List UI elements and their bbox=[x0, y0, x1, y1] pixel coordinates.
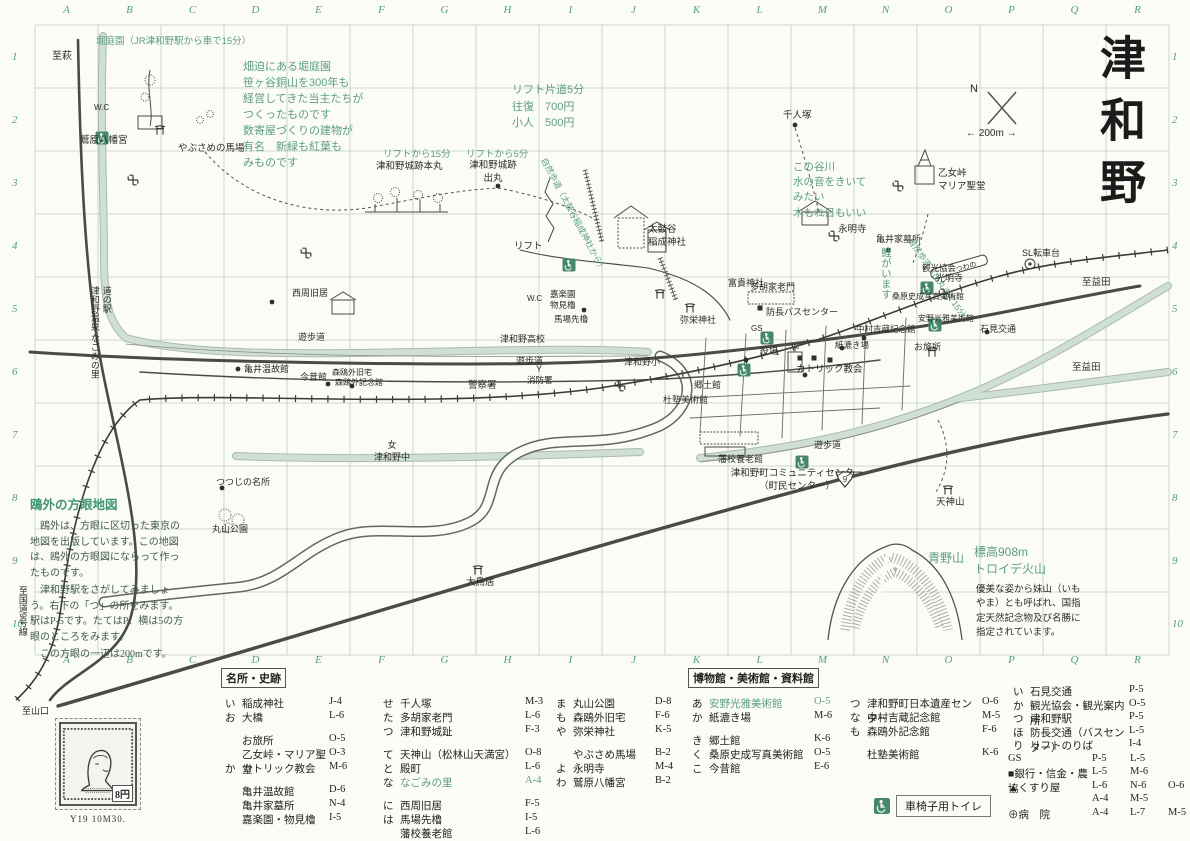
map-label: 標高908m トロイデ火山 bbox=[974, 544, 1046, 578]
map-label: この谷川 水の音をきいて みたい 木もれ日もいい bbox=[793, 160, 866, 221]
legend-place-name: 亀井家墓所 bbox=[242, 798, 329, 813]
legend-row: 亀井温故館D-6 bbox=[225, 784, 365, 799]
grid-row-label: 7 bbox=[1172, 429, 1178, 441]
map-label: 至益田 bbox=[1082, 277, 1111, 290]
legend-place-name: 安野光雅美術館 bbox=[709, 696, 814, 711]
grid-column-label: R bbox=[1134, 4, 1141, 16]
legend-kana bbox=[225, 733, 242, 748]
legend-place-name: 今昔館 bbox=[709, 761, 814, 776]
legend-row: 杜塾美術館K-6 bbox=[850, 747, 1018, 762]
torii-icon bbox=[943, 486, 953, 495]
legend-grid-coord: E-6 bbox=[814, 761, 850, 776]
map-label: 津和野町コミュニティセンター （町民センター） bbox=[706, 468, 888, 493]
grid-column-label: K bbox=[693, 654, 700, 666]
map-label: 津和野城跡本丸 bbox=[376, 161, 443, 174]
legend-facility-row: A-4M-5 bbox=[1008, 793, 1168, 804]
grid-row-label: 9 bbox=[1172, 555, 1178, 567]
legend-kana: な bbox=[383, 775, 400, 790]
legend-kana: い bbox=[225, 696, 242, 711]
grid-row-label: 6 bbox=[12, 366, 18, 378]
legend-grid-coord: M-5 bbox=[1168, 807, 1190, 822]
legend-place-name: 大橋 bbox=[242, 710, 329, 725]
bank-icon bbox=[828, 358, 833, 363]
map-label: 優美な姿から妹山（いも やま）とも呼ばれ、国指 定天然記念物及び名勝に 指定され… bbox=[976, 583, 1081, 640]
map-label: 丸山公園 bbox=[212, 524, 248, 536]
legend-grid-coord: F-5 bbox=[525, 798, 561, 813]
legend-kana bbox=[383, 826, 400, 841]
map-label: 畑迫にある堀庭園 笹ヶ谷銅山を300年も 経営してきた当主たちが つくったもので… bbox=[243, 60, 363, 172]
legend-row: き郷土館K-6 bbox=[692, 733, 850, 748]
map-label: 西周旧居 bbox=[292, 288, 328, 300]
map-label: 永明寺 bbox=[838, 224, 867, 237]
map-label: 太鼓谷 稲成神社 bbox=[648, 224, 686, 249]
legend-place-name: 中村吉蔵記念館 bbox=[867, 710, 982, 725]
map-label: つつじの名所 bbox=[216, 477, 270, 489]
legend-kana: お bbox=[225, 710, 242, 725]
map-label: 津和野小 bbox=[624, 357, 660, 369]
temple-manji-icon bbox=[615, 381, 625, 391]
tsuwano-map-page: 9 AABBCCDDEEFFGGHHIIJJKKLLMMNNOOPPQQRR11… bbox=[0, 0, 1190, 841]
legend-kana: り bbox=[1013, 738, 1030, 753]
grid-column-label: B bbox=[126, 4, 133, 16]
legend-grid-coord: F-6 bbox=[655, 710, 691, 725]
stamp-frame: 8円 bbox=[59, 722, 137, 806]
grid-map-note-paragraph: 津和野駅をさがしてみましょう。右下の「つ」の所をみます。駅はP-5です。たてはP… bbox=[30, 583, 186, 645]
map-label: 鯉がいます bbox=[878, 247, 892, 300]
legend-row: つ津和野城趾F-3 bbox=[383, 724, 561, 739]
torii-icon bbox=[685, 304, 695, 313]
compass-icon bbox=[988, 92, 1016, 124]
legend-row: お旅所O-5 bbox=[225, 733, 365, 748]
legend-facility-label: ⊕病 院 bbox=[1008, 807, 1092, 822]
legend-row: て天神山（松林山天満宮）O-8 bbox=[383, 747, 561, 762]
grid-column-label: Q bbox=[1071, 654, 1079, 666]
grid-row-label: 1 bbox=[1172, 51, 1178, 63]
spot-dot-icon bbox=[236, 367, 241, 372]
torii-icon bbox=[155, 126, 165, 135]
legend-grid-coord: N-4 bbox=[329, 798, 365, 813]
map-label: カトリック教会 bbox=[796, 364, 863, 377]
temple-manji-icon bbox=[893, 181, 903, 191]
page-title: 津和野 bbox=[1086, 34, 1152, 220]
grid-column-label: D bbox=[252, 4, 260, 16]
map-label: 紙漉き場 bbox=[835, 340, 869, 351]
grid-row-label: 1 bbox=[12, 51, 18, 63]
grid-column-label: K bbox=[693, 4, 700, 16]
legend-kana: こ bbox=[692, 761, 709, 776]
legend-place-name: 杜塾美術館 bbox=[867, 747, 982, 762]
legend-row: く桑原史成写真美術館O-5 bbox=[692, 747, 850, 762]
grid-column-label: Q bbox=[1071, 4, 1079, 16]
grid-row-label: 9 bbox=[12, 555, 18, 567]
legend-place-name: 殿町 bbox=[400, 761, 525, 776]
map-label: 千人塚 bbox=[783, 110, 812, 123]
grid-row-label: 3 bbox=[1172, 177, 1178, 189]
legend-kana bbox=[225, 812, 242, 827]
map-label: 森鴎外旧宅 bbox=[332, 368, 372, 379]
map-label: 至益田 bbox=[1072, 362, 1101, 375]
legend-grid-coord: B-2 bbox=[655, 775, 691, 790]
torii-icon bbox=[473, 566, 483, 575]
spot-dot-icon bbox=[793, 123, 798, 128]
legend-row: た多胡家老門L-6 bbox=[383, 710, 561, 725]
legend-row: あ安野光雅美術館O-5 bbox=[692, 696, 850, 711]
legend-row: よ永明寺M-4 bbox=[556, 761, 691, 776]
legend-grid-coord: O-5 bbox=[814, 696, 850, 711]
river-meander bbox=[104, 356, 687, 602]
legend-kana: は bbox=[383, 812, 400, 827]
legend-kana bbox=[225, 798, 242, 813]
legend-place-name: 桑原史成写真美術館 bbox=[709, 747, 814, 762]
legend-place-name: 津和野城趾 bbox=[400, 724, 525, 739]
legend-facility-label bbox=[1008, 793, 1092, 804]
grid-column-label: I bbox=[569, 654, 573, 666]
bank-icon bbox=[758, 306, 763, 311]
map-label: 至萩 bbox=[52, 50, 72, 63]
legend-row: は馬場先櫓I-5 bbox=[383, 812, 561, 827]
legend-place-name: 郷土館 bbox=[709, 733, 814, 748]
grid-column-label: J bbox=[631, 4, 636, 16]
legend-grid-coord: M-6 bbox=[814, 710, 850, 725]
map-label: 鷲原八幡宮 bbox=[80, 135, 128, 148]
grid-column-label: C bbox=[189, 654, 196, 666]
legend-row: も森鴎外旧宅F-6 bbox=[556, 710, 691, 725]
legend-kana bbox=[850, 747, 867, 762]
map-label: 中村吉蔵記念館 bbox=[856, 324, 916, 335]
torii-icon bbox=[655, 290, 665, 299]
grid-column-label: G bbox=[441, 4, 449, 16]
map-label: 天神山 bbox=[936, 497, 965, 510]
legend-place-name: 紙漉き場 bbox=[709, 710, 814, 725]
grid-column-label: F bbox=[378, 4, 385, 16]
legend-grid-coord: L-6 bbox=[525, 826, 561, 841]
grid-row-label: 6 bbox=[1172, 366, 1178, 378]
grid-column-label: N bbox=[882, 4, 889, 16]
legend-grid-coord: P-5 bbox=[1092, 753, 1130, 764]
map-label: 多胡家老門 bbox=[750, 282, 795, 294]
legend-grid-coord: B-2 bbox=[655, 747, 691, 762]
grid-column-label: O bbox=[945, 654, 953, 666]
map-label: 杜塾美術館 bbox=[663, 395, 708, 407]
map-label: リフト bbox=[514, 241, 543, 254]
legend-place-name: 永明寺 bbox=[573, 761, 655, 776]
legend-kana: く bbox=[692, 747, 709, 762]
legend-grid-coord: M-5 bbox=[1130, 793, 1168, 804]
grid-column-label: L bbox=[756, 654, 762, 666]
grid-column-label: D bbox=[252, 654, 260, 666]
map-label: GS bbox=[751, 324, 763, 335]
legend-place-name: 森鴎外旧宅 bbox=[573, 710, 655, 725]
legend-kana: な bbox=[850, 710, 867, 725]
legend-row: も森鴎外記念館F-6 bbox=[850, 724, 1018, 739]
legend-grid-coord: M-6 bbox=[329, 761, 365, 776]
legend-kana: か bbox=[225, 761, 242, 776]
legend-kana: も bbox=[556, 710, 573, 725]
legend-kana: た bbox=[383, 710, 400, 725]
legend-place-name: カトリック教会 bbox=[242, 761, 329, 776]
legend-section-header: 博物館・美術館・資料館 bbox=[688, 668, 819, 688]
legend-place-name: 丸山公園 bbox=[573, 696, 655, 711]
map-label: 津和野城跡 出丸 bbox=[462, 160, 524, 185]
legend-grid-coord: D-6 bbox=[329, 784, 365, 799]
map-label: 津和野高校 bbox=[500, 334, 545, 346]
wheelchair-icon bbox=[563, 259, 576, 272]
legend-place-name: 稲成神社 bbox=[242, 696, 329, 711]
legend-grid-coord: L-7 bbox=[1130, 807, 1168, 822]
legend-row: こ今昔館E-6 bbox=[692, 761, 850, 776]
legend-place-name: 多胡家老門 bbox=[400, 710, 525, 725]
spot-dot-icon bbox=[270, 300, 275, 305]
grid-column-label: N bbox=[882, 654, 889, 666]
grid-row-label: 5 bbox=[12, 303, 18, 315]
legend-place-name: なごみの里 bbox=[400, 775, 525, 790]
legend-kana: ま bbox=[556, 696, 573, 711]
legend-grid-coord: A-4 bbox=[1092, 807, 1130, 822]
map-label: N bbox=[970, 82, 978, 97]
map-label: 安野光雅美術館 bbox=[918, 314, 974, 325]
temple-manji-icon bbox=[128, 175, 138, 185]
map-label: 光明寺 bbox=[936, 273, 963, 285]
legend-row: な中村吉蔵記念館M-5 bbox=[850, 710, 1018, 725]
legend-row: お大橋L-6 bbox=[225, 710, 365, 725]
map-label: SL転車台 bbox=[1022, 248, 1060, 260]
legend-kana: つ bbox=[383, 724, 400, 739]
legend-row: ま丸山公園D-8 bbox=[556, 696, 691, 711]
map-label: 役場 bbox=[760, 346, 778, 358]
legend-grid-coord: J-4 bbox=[329, 696, 365, 711]
legend-kana: に bbox=[383, 798, 400, 813]
legend-grid-coord: O-6 bbox=[1168, 780, 1190, 795]
grid-row-label: 4 bbox=[12, 240, 18, 252]
legend-place-name: 鷲原八幡宮 bbox=[573, 775, 655, 790]
legend-place-name: 森鴎外記念館 bbox=[867, 724, 982, 739]
legend-grid-coord: M-4 bbox=[655, 761, 691, 776]
map-label: 石見交通 bbox=[980, 324, 1016, 336]
legend-place-name: リフトのりば bbox=[1030, 738, 1129, 753]
legend-kana: あ bbox=[692, 696, 709, 711]
legend-grid-coord: I-5 bbox=[525, 812, 561, 827]
grid-column-label: P bbox=[1008, 4, 1015, 16]
legend-place-name: 西周旧居 bbox=[400, 798, 525, 813]
legend-grid-coord: D-8 bbox=[655, 696, 691, 711]
map-label: 弥栄神社 bbox=[680, 315, 716, 327]
legend-row: か紙漉き場M-6 bbox=[692, 710, 850, 725]
legend-grid-coord: L-6 bbox=[329, 710, 365, 725]
map-label: 森鴎外記念館 bbox=[335, 378, 383, 389]
map-label: 堀庭園（JR津和野駅から車で15分） bbox=[96, 36, 251, 49]
grid-column-label: O bbox=[945, 4, 953, 16]
legend-kana: て bbox=[383, 747, 400, 762]
grid-column-label: E bbox=[315, 654, 322, 666]
stamp-caption: Y19 10M30. bbox=[55, 814, 141, 824]
grid-column-label: G bbox=[441, 654, 449, 666]
legend-kana: わ bbox=[556, 775, 573, 790]
legend-place-name: 天神山（松林山天満宮） bbox=[400, 747, 525, 762]
grid-column-label: E bbox=[315, 4, 322, 16]
grid-column-label: L bbox=[756, 4, 762, 16]
map-label: 至国道9号線 bbox=[16, 586, 28, 636]
legend-grid-coord: L-5 bbox=[1130, 753, 1168, 764]
legend-place-name: 千人塚 bbox=[400, 696, 525, 711]
map-label: 防長バスセンター bbox=[766, 307, 838, 319]
legend-kana: せ bbox=[383, 696, 400, 711]
map-label: 女 津和野中 bbox=[362, 440, 422, 464]
map-label: 観光協会 bbox=[922, 263, 956, 274]
stamp-denomination: 8円 bbox=[112, 785, 133, 802]
wheelchair-icon bbox=[796, 456, 809, 469]
map-label: 警察署 bbox=[468, 380, 497, 393]
legend-place-name: 嘉楽園・物見櫓 bbox=[242, 812, 329, 827]
legend-place-name: 馬場先櫓 bbox=[400, 812, 525, 827]
washibara-shrine-sketch bbox=[138, 70, 213, 129]
grid-column-label: H bbox=[504, 654, 512, 666]
temple-manji-icon bbox=[301, 248, 311, 258]
legend-grid-coord: I-5 bbox=[329, 812, 365, 827]
legend-row: せ千人塚M-3 bbox=[383, 696, 561, 711]
map-label: 乙女峠 マリア聖堂 bbox=[938, 168, 986, 193]
legend-kana: と bbox=[383, 761, 400, 776]
map-label: 亀井温故館 bbox=[244, 364, 289, 376]
legend-place-name: 藩校養老館 bbox=[400, 826, 525, 841]
map-label: お旅所 bbox=[914, 342, 941, 354]
wheelchair-icon bbox=[874, 798, 890, 814]
legend-place-name: お旅所 bbox=[242, 733, 329, 748]
legend-kana: か bbox=[692, 710, 709, 725]
legend-kana bbox=[225, 784, 242, 799]
grid-column-label: C bbox=[189, 4, 196, 16]
legend-kana: き bbox=[692, 733, 709, 748]
legend-row: りリフトのりばI-4 bbox=[1013, 738, 1165, 753]
grid-map-note-title: 鴎外の方眼地図 bbox=[30, 494, 186, 513]
grid-row-label: 5 bbox=[1172, 303, 1178, 315]
map-label: 至山口 bbox=[22, 706, 49, 718]
grid-row-label: 10 bbox=[1172, 618, 1183, 630]
legend-row: 亀井家墓所N-4 bbox=[225, 798, 365, 813]
map-label: 藩校養老館 bbox=[718, 454, 763, 466]
map-label: 遊歩道 bbox=[814, 440, 841, 452]
map-label: 今昔館 bbox=[300, 372, 327, 384]
wheelchair-toilet-note: 車椅子用トイレ bbox=[874, 795, 991, 817]
map-label: ← 200m → bbox=[966, 127, 1017, 140]
grid-column-label: M bbox=[818, 654, 827, 666]
grid-row-label: 3 bbox=[12, 177, 18, 189]
legend-facility-label: GS bbox=[1008, 753, 1092, 764]
legend-kana: よ bbox=[556, 761, 573, 776]
grid-row-label: 7 bbox=[12, 429, 18, 441]
legend-row: かカトリック教会M-6 bbox=[225, 761, 365, 776]
grid-map-note-paragraph: この方眼の一辺は200mです。 bbox=[30, 647, 186, 663]
legend-place-name: 弥栄神社 bbox=[573, 724, 655, 739]
bank-icon bbox=[812, 356, 817, 361]
map-label: リフトから15分 bbox=[383, 149, 451, 162]
map-label: 遊歩道 bbox=[298, 332, 325, 344]
wheelchair-toilet-label: 車椅子用トイレ bbox=[896, 795, 991, 817]
map-label: W.C bbox=[527, 294, 542, 305]
grid-row-label: 8 bbox=[1172, 492, 1178, 504]
spot-dot-icon bbox=[582, 308, 587, 313]
legend-row: 嘉楽園・物見櫓I-5 bbox=[225, 812, 365, 827]
castle-sketch bbox=[365, 188, 448, 213]
legend-grid-coord: A-4 bbox=[1092, 793, 1130, 804]
grid-column-label: I bbox=[569, 4, 573, 16]
map-label: リフト片道5分 往復 700円 小人 500円 bbox=[512, 82, 584, 132]
map-label: やぶさめの馬場 bbox=[178, 143, 245, 156]
legend-row: や弥栄神社K-5 bbox=[556, 724, 691, 739]
grid-column-label: A bbox=[63, 4, 70, 16]
ogai-stamp: 8円 bbox=[55, 718, 141, 810]
map-label: 道の駅 津和野温泉 なごみの里 bbox=[88, 286, 112, 379]
map-label: 嘉楽園 物見櫓 bbox=[550, 289, 576, 311]
grid-map-note-paragraph: 鴎外は、方眼に区切った東京の地図を出版しています。この地図は、鴎外の方眼図になら… bbox=[30, 519, 186, 581]
grid-column-label: H bbox=[504, 4, 512, 16]
map-label: 亀井家墓所 bbox=[876, 234, 921, 246]
legend-grid-coord: O-5 bbox=[814, 747, 850, 762]
spot-dot-icon bbox=[744, 358, 749, 363]
map-label: 青野山 bbox=[928, 551, 964, 567]
grid-row-label: 2 bbox=[12, 114, 18, 126]
map-label: 大鳥居 bbox=[466, 577, 495, 590]
legend-row: 藩校養老館L-6 bbox=[383, 826, 561, 841]
legend-grid-coord: K-5 bbox=[655, 724, 691, 739]
grid-column-label: R bbox=[1134, 654, 1141, 666]
legend-place-name: やぶさめ馬場 bbox=[573, 747, 655, 762]
legend-kana: や bbox=[556, 724, 573, 739]
map-label: 馬場先櫓 bbox=[554, 314, 588, 325]
legend-grid-coord: I-4 bbox=[1129, 738, 1165, 753]
legend-facility-row: GSP-5L-5 bbox=[1008, 753, 1168, 764]
legend-place-name: 亀井温故館 bbox=[242, 784, 329, 799]
grid-row-label: 8 bbox=[12, 492, 18, 504]
legend-kana: も bbox=[850, 724, 867, 739]
map-label: 消防署 bbox=[527, 375, 553, 386]
legend-row: に西周旧居F-5 bbox=[383, 798, 561, 813]
map-label: W.C bbox=[94, 103, 109, 114]
legend-row: い稲成神社J-4 bbox=[225, 696, 365, 711]
legend-row: と殿町L-6 bbox=[383, 761, 561, 776]
legend-grid-coord: K-6 bbox=[814, 733, 850, 748]
wheelchair-icon bbox=[738, 364, 751, 377]
grid-row-label: 4 bbox=[1172, 240, 1178, 252]
grid-row-label: 2 bbox=[1172, 114, 1178, 126]
grid-column-label: P bbox=[1008, 654, 1015, 666]
map-label: 郷土館 bbox=[694, 380, 721, 392]
grid-map-note: 鴎外の方眼地図 鴎外は、方眼に区切った東京の地図を出版しています。この地図は、鴎… bbox=[30, 494, 186, 665]
legend-grid-coord: O-5 bbox=[329, 733, 365, 748]
grid-column-label: J bbox=[631, 654, 636, 666]
grid-column-label: F bbox=[378, 654, 385, 666]
legend-row: ななごみの里A-4 bbox=[383, 775, 561, 790]
legend-row: やぶさめ馬場B-2 bbox=[556, 747, 691, 762]
legend-kana bbox=[556, 747, 573, 762]
bank-icon bbox=[798, 356, 803, 361]
legend-section-header: 名所・史跡 bbox=[221, 668, 286, 688]
grid-column-label: M bbox=[818, 4, 827, 16]
map-label: 桑原史成写真美術館 bbox=[892, 292, 964, 303]
legend-row: わ鷲原八幡宮B-2 bbox=[556, 775, 691, 790]
legend-facility-row: ⊕病 院A-4L-7M-5 bbox=[1008, 807, 1190, 822]
